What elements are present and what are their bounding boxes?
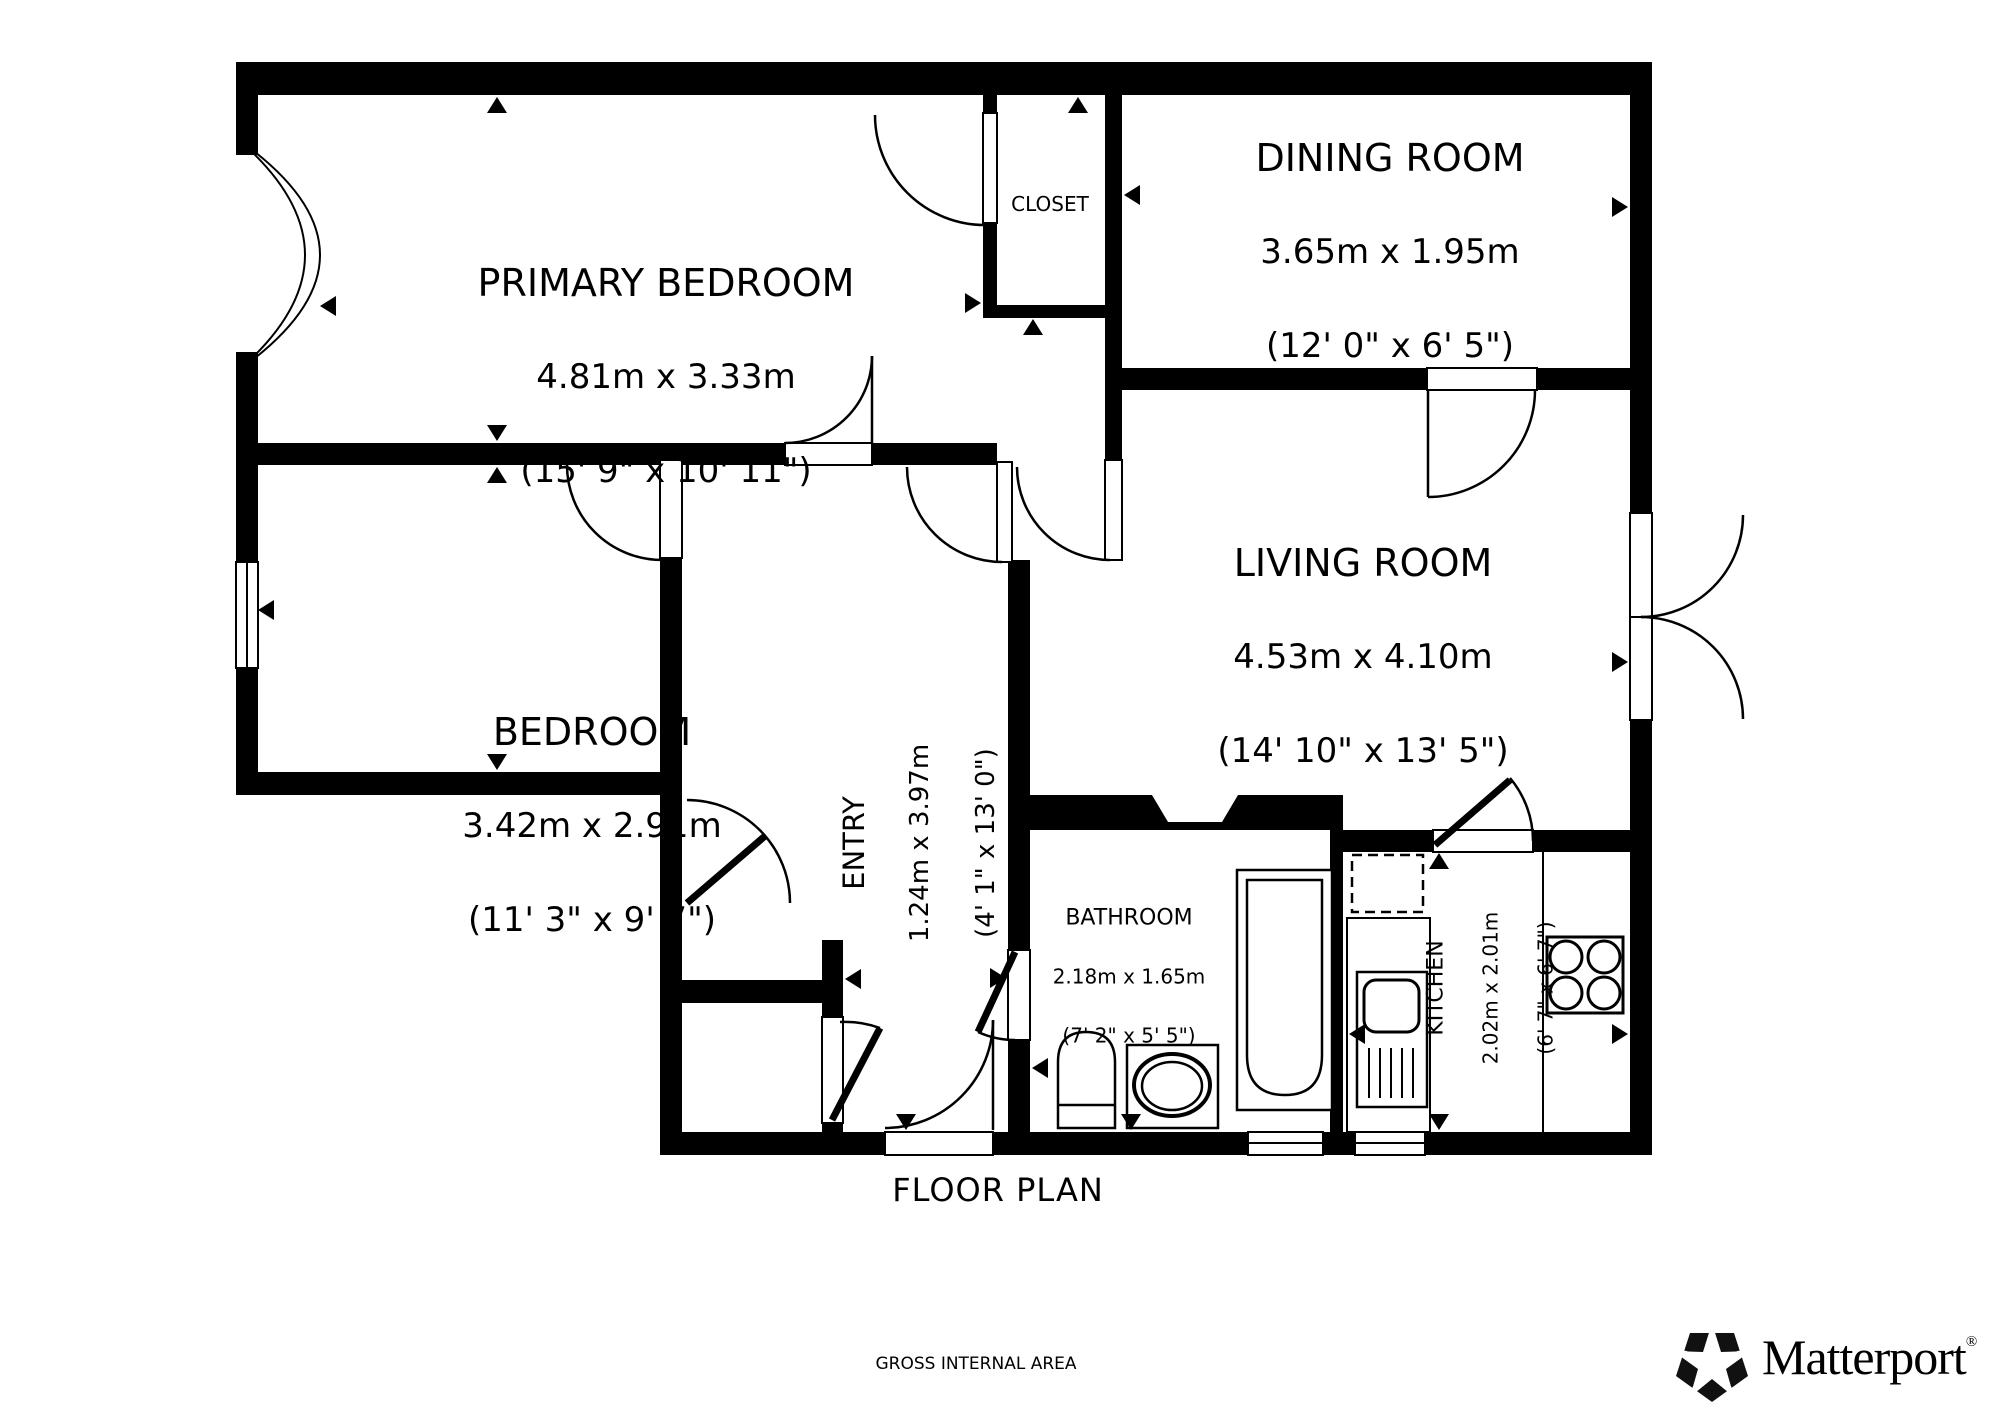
bay-window (250, 150, 320, 360)
room-dimensions-imperial: (6' 7" x 6' 7") (1535, 912, 1558, 1065)
room-dimensions-imperial: (12' 0" x 6' 5") (1255, 324, 1524, 368)
registered-mark: ® (1966, 1334, 1976, 1350)
room-name: LIVING ROOM (1217, 541, 1508, 585)
room-name: BATHROOM (1053, 905, 1206, 932)
area-summary: GROSS INTERNAL AREA FLOOR PLAN 64.3 m² (… (706, 1316, 1245, 1414)
page-title: FLOOR PLAN (892, 1174, 1104, 1206)
room-name: ENTRY (837, 744, 871, 942)
gross-internal-area-heading: GROSS INTERNAL AREA (706, 1355, 1245, 1375)
room-dimensions-imperial: (11' 3" x 9' 7") (462, 898, 721, 942)
room-dimensions-metric: 2.02m x 2.01m (1480, 912, 1503, 1065)
room-name: KITCHEN (1425, 912, 1448, 1065)
brand-name: Matterport® (1762, 1328, 1976, 1386)
room-dimensions-metric: 1.24m x 3.97m (903, 744, 937, 942)
room-label-dining-room: DINING ROOM 3.65m x 1.95m (12' 0" x 6' 5… (1255, 95, 1524, 409)
appliance-dashed-icon (1352, 855, 1423, 912)
room-label-primary-bedroom: PRIMARY BEDROOM 4.81m x 3.33m (15' 9" x … (478, 220, 855, 534)
bathtub-icon (1237, 870, 1332, 1110)
room-dimensions-metric: 3.65m x 1.95m (1255, 230, 1524, 274)
room-label-living-room: LIVING ROOM 4.53m x 4.10m (14' 10" x 13'… (1217, 500, 1508, 814)
room-label-bathroom: BATHROOM 2.18m x 1.65m (7' 2" x 5' 5") (1053, 873, 1206, 1082)
room-dimensions-metric: 4.53m x 4.10m (1217, 635, 1508, 679)
floor-plan-page: PRIMARY BEDROOM 4.81m x 3.33m (15' 9" x … (0, 0, 2000, 1414)
room-dimensions-metric: 2.18m x 1.65m (1053, 964, 1206, 991)
room-dimensions-imperial: (14' 10" x 13' 5") (1217, 729, 1508, 773)
room-name: DINING ROOM (1255, 136, 1524, 180)
brand-logo: Matterport® (1670, 1328, 1976, 1386)
room-dimensions-metric: 3.42m x 2.91m (462, 804, 721, 848)
room-dimensions-imperial: (15' 9" x 10' 11") (478, 449, 855, 493)
room-label-bedroom: BEDROOM 3.42m x 2.91m (11' 3" x 9' 7") (462, 669, 721, 983)
room-label-entry: ENTRY 1.24m x 3.97m (4' 1" x 13' 0") (805, 744, 1035, 942)
room-name: PRIMARY BEDROOM (478, 261, 855, 305)
room-label-closet: CLOSET (1011, 194, 1089, 214)
room-dimensions-metric: 4.81m x 3.33m (478, 355, 855, 399)
room-dimensions-imperial: (4' 1" x 13' 0") (969, 744, 1003, 942)
room-dimensions-imperial: (7' 2" x 5' 5") (1053, 1023, 1206, 1050)
room-name: BEDROOM (462, 710, 721, 754)
room-label-kitchen: KITCHEN 2.02m x 2.01m (6' 7" x 6' 7") (1393, 912, 1590, 1065)
